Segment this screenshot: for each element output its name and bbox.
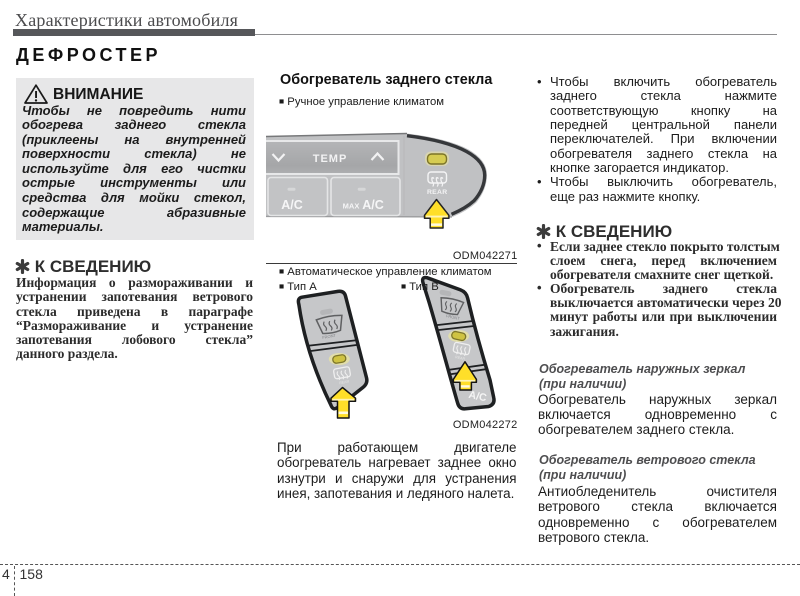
svg-text:MAX: MAX [343,202,360,211]
svg-text:A/C: A/C [362,198,384,212]
svg-text:REAR: REAR [427,189,447,196]
svg-text:A/C: A/C [281,198,303,212]
svg-text:TEMP: TEMP [313,153,348,165]
